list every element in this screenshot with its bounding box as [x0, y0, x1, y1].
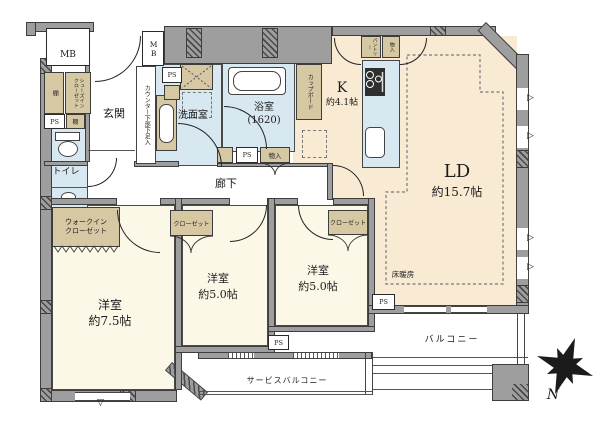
stove-burner: [367, 72, 374, 79]
stove-burner: [367, 81, 374, 88]
label-bedroom1-size: 約7.5帖: [78, 314, 142, 330]
label-ld: LD: [432, 160, 482, 183]
label-balcony: バルコニー: [402, 335, 502, 347]
label-bedroom3-size: 約5.0帖: [288, 280, 348, 294]
label-bedroom3: 洋室: [293, 264, 343, 278]
closet2-doors: [170, 236, 213, 253]
label-entrance: 玄関: [89, 107, 139, 121]
label-kitchen: K: [327, 79, 357, 97]
floor-plan: MB MB 棚 シューズイン クローゼット PS 棚 ウォークイン クローゼット…: [0, 0, 600, 427]
label-floor-heating: 床暖房: [387, 270, 419, 280]
label-corridor: 廊下: [196, 177, 256, 191]
label-bedroom2-size: 約5.0帖: [188, 288, 248, 302]
label-bedroom1: 洋室: [85, 298, 135, 314]
label-ld-size: 約15.7帖: [419, 185, 495, 201]
label-bathroom-size: (1620): [234, 114, 294, 127]
label-washroom: 洗面室: [163, 109, 223, 122]
stove-burner: [376, 76, 382, 82]
wic-folding-door: [54, 246, 118, 252]
label-compass-north: N: [538, 386, 568, 404]
label-toilet: トイレ: [44, 167, 88, 179]
closet3-doors: [328, 235, 368, 251]
storage-corridor-doors: [260, 163, 290, 175]
label-kitchen-size: 約4.1帖: [321, 98, 363, 110]
label-service-balcony: サービスバルコニー: [212, 376, 362, 386]
linen-x-mark: [182, 66, 211, 88]
label-bedroom2: 洋室: [193, 272, 243, 286]
label-bathroom: 浴室: [234, 101, 294, 114]
